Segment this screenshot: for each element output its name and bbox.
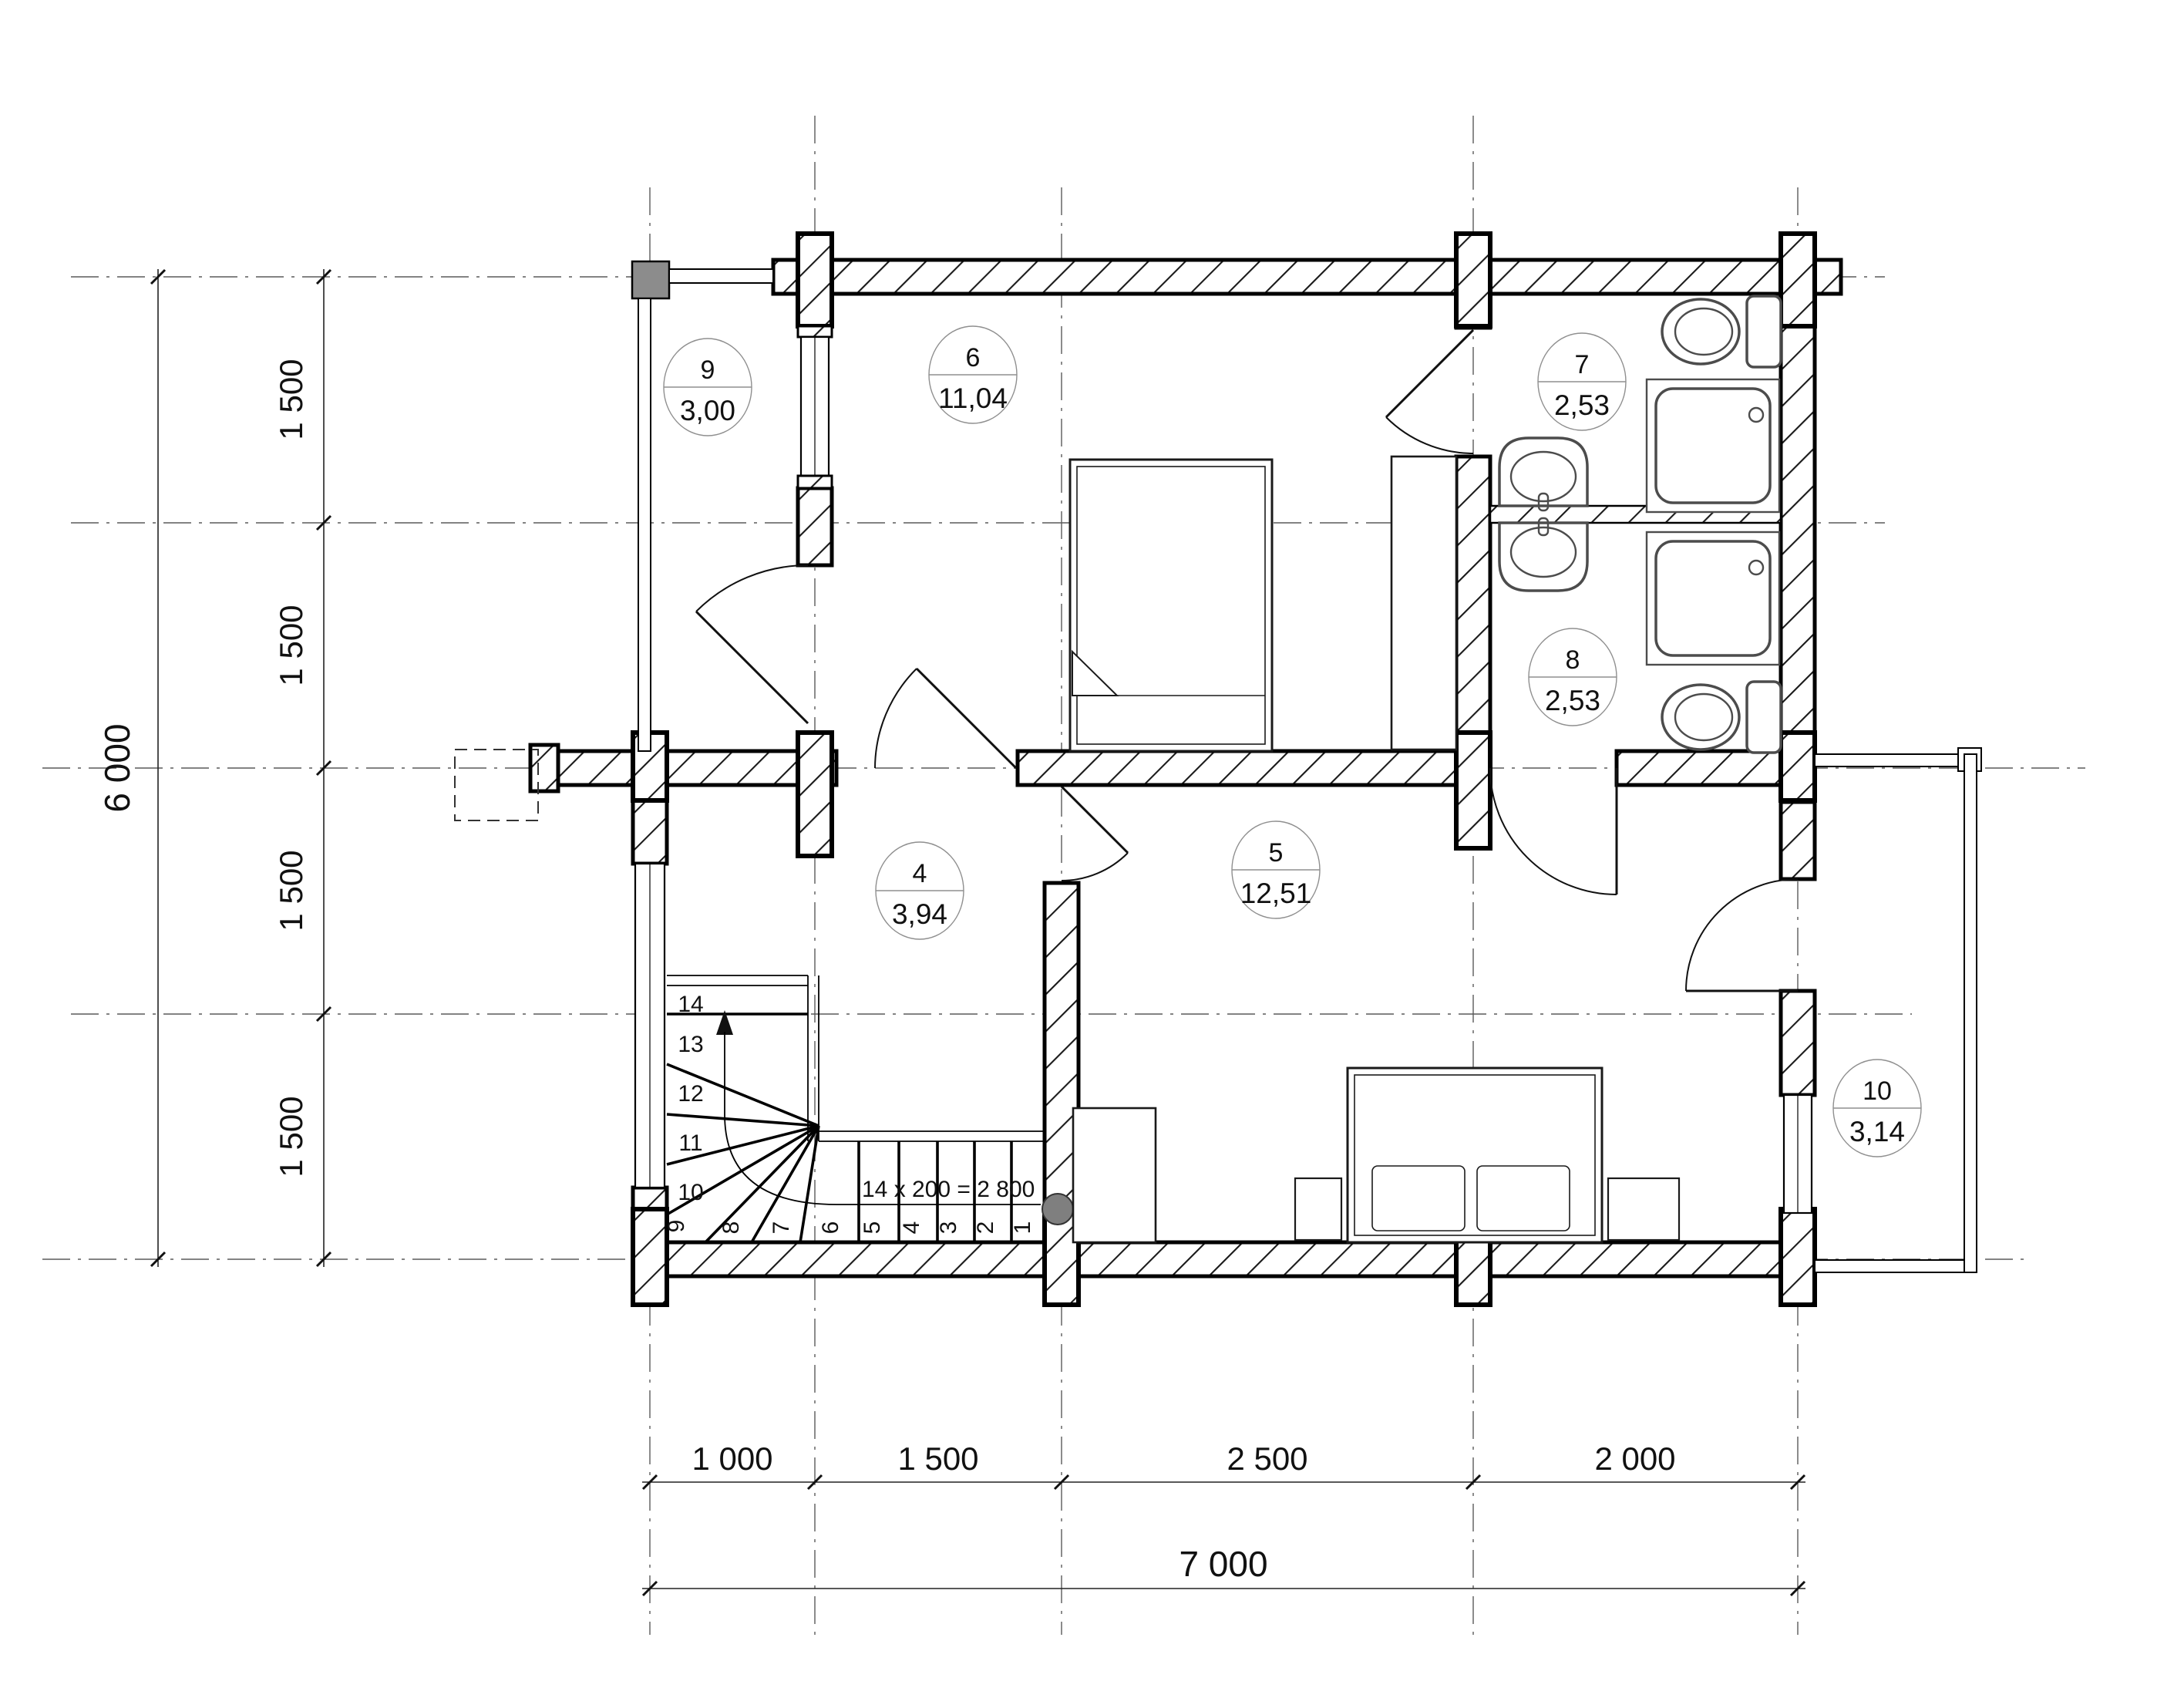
room-area: 2,53 [1554, 389, 1610, 421]
balcony-rails [1815, 748, 1981, 1272]
door-leaf [1062, 787, 1128, 853]
middle-wall-left [540, 751, 836, 785]
column-e-bottom [1781, 1209, 1815, 1305]
bottom-wall [633, 1242, 1815, 1276]
window-b-jamb-top [798, 326, 832, 337]
door-arc [1686, 879, 1798, 991]
step-number: 9 [664, 1220, 689, 1233]
window-b-jamb-bottom [798, 476, 832, 488]
dim-label-1500: 1 500 [273, 605, 309, 686]
bathroom-7-fixtures [1499, 296, 1781, 512]
room-label-8: 8 2,53 [1529, 628, 1617, 726]
step-number: 14 [678, 992, 703, 1017]
room-area: 3,14 [1849, 1116, 1905, 1147]
sink-symbol-8 [1499, 518, 1587, 591]
room-label-9: 9 3,00 [664, 339, 752, 436]
door-bath-8 [1490, 768, 1617, 895]
door-room-5 [1062, 787, 1128, 881]
step-number: 5 [860, 1221, 885, 1235]
room-label-7: 7 2,53 [1538, 333, 1626, 430]
staircase: 14 x 200 = 2 800 14 13 12 11 10 9 8 7 6 … [664, 975, 1073, 1242]
door-leaf [1386, 330, 1473, 417]
bed-room-5 [1348, 1068, 1602, 1242]
step-number: 3 [936, 1221, 961, 1235]
shower-symbol-7 [1647, 379, 1779, 512]
balcony-right-rail [1964, 754, 1977, 1272]
door-room-6 [875, 669, 1016, 768]
stair-landing-edge [667, 975, 808, 986]
dim-label-1500: 1 500 [897, 1440, 978, 1477]
loggia-top-rail [669, 269, 773, 283]
wall-d [1456, 457, 1490, 751]
door-bath-7 [1386, 330, 1473, 453]
room-label-5: 5 12,51 [1232, 821, 1320, 918]
dim-label-6000: 6 000 [97, 723, 137, 812]
room-number: 9 [701, 355, 715, 385]
door-leaf [696, 612, 808, 723]
stair-step-numbers-lower: 9 8 7 6 5 4 3 2 1 [664, 1220, 1035, 1235]
corner-post [632, 261, 669, 298]
step-number: 2 [973, 1221, 998, 1235]
balcony-bottom-rail [1815, 1260, 1964, 1272]
bed-room-6 [1070, 460, 1272, 751]
bathroom-8-fixtures [1499, 518, 1781, 753]
right-wall-mid-seg [1781, 802, 1815, 879]
column-d-mid [1456, 733, 1490, 848]
toilet-symbol-8 [1662, 682, 1781, 753]
room-label-10: 10 3,14 [1833, 1060, 1921, 1157]
dim-label-2000: 2 000 [1594, 1440, 1675, 1477]
right-wall-jamb [1781, 991, 1815, 1095]
column-d-top [1456, 234, 1490, 326]
floor-plan-canvas: 14 x 200 = 2 800 14 13 12 11 10 9 8 7 6 … [0, 0, 2184, 1688]
room-area: 11,04 [938, 382, 1008, 414]
sink-symbol-7 [1499, 438, 1587, 510]
dim-label-1000: 1 000 [692, 1440, 772, 1477]
step-number: 10 [678, 1180, 703, 1205]
step-number: 11 [678, 1130, 702, 1156]
loggia-rails [632, 261, 773, 751]
column-e-top [1781, 234, 1815, 326]
room-area: 3,00 [680, 395, 735, 426]
dim-label-1500: 1 500 [273, 359, 309, 440]
door-arc [1062, 853, 1128, 881]
nightstand-right [1608, 1178, 1679, 1240]
column-e-mid [1781, 733, 1815, 800]
toilet-symbol-7 [1662, 296, 1781, 367]
shower-symbol-8 [1647, 532, 1779, 665]
column-b-mid [798, 733, 832, 856]
stair-formula: 14 x 200 = 2 800 [862, 1177, 1035, 1202]
door-loggia-9 [696, 565, 808, 723]
middle-wall-center [1018, 751, 1456, 785]
furniture [1070, 457, 1679, 1242]
dimension-bottom-segments: 1 000 1 500 2 500 2 000 [642, 1440, 1805, 1489]
wall-b-block [798, 488, 832, 565]
room-number: 4 [913, 859, 927, 888]
step-number: 7 [769, 1221, 794, 1235]
nightstand-left [1295, 1178, 1341, 1240]
door-arc [1386, 417, 1473, 453]
room-number: 8 [1566, 645, 1580, 675]
door-arc [1490, 768, 1617, 895]
wardrobe-room-5 [1073, 1108, 1156, 1242]
stair-railing [808, 975, 1045, 1141]
newel-circle [1042, 1194, 1073, 1225]
step-number: 6 [818, 1221, 843, 1235]
dim-label-1500: 1 500 [273, 850, 309, 931]
room-number: 7 [1575, 350, 1590, 379]
dim-label-2500: 2 500 [1227, 1440, 1307, 1477]
top-wall [773, 260, 1841, 294]
step-number: 4 [899, 1221, 924, 1235]
step-number: 8 [718, 1221, 744, 1235]
middle-wall-end-cap [530, 745, 558, 791]
loggia-left-rail [638, 298, 651, 751]
dim-label-1500: 1 500 [273, 1096, 309, 1177]
column-b-top [798, 234, 832, 326]
middle-wall-right [1617, 751, 1781, 785]
room-number: 5 [1269, 838, 1284, 868]
room-label-4: 4 3,94 [876, 842, 964, 939]
dimension-bottom-total: 7 000 [642, 1544, 1805, 1595]
right-wall-upper [1781, 294, 1815, 751]
wardrobe-room-6 [1392, 457, 1456, 750]
stair-treads [667, 1014, 1011, 1242]
step-number: 12 [678, 1081, 703, 1107]
room-number: 6 [966, 343, 981, 372]
overhang-dashed-outline [455, 750, 538, 820]
room-area: 2,53 [1545, 685, 1600, 716]
step-number: 1 [1010, 1221, 1035, 1235]
dim-label-7000: 7 000 [1179, 1544, 1267, 1584]
room-area: 12,51 [1240, 878, 1312, 909]
door-arc [875, 669, 917, 768]
door-leaf [917, 669, 1016, 768]
balcony-top-rail [1815, 754, 1964, 767]
step-number: 13 [678, 1032, 703, 1057]
column-a-bottom [633, 1209, 667, 1305]
door-arc [696, 565, 808, 612]
room-area: 3,94 [892, 898, 947, 930]
room-number: 10 [1863, 1076, 1892, 1106]
door-balcony-10 [1686, 879, 1798, 991]
room-label-6: 6 11,04 [929, 326, 1017, 423]
stair-step-numbers-upper: 14 13 12 11 10 [678, 992, 703, 1205]
